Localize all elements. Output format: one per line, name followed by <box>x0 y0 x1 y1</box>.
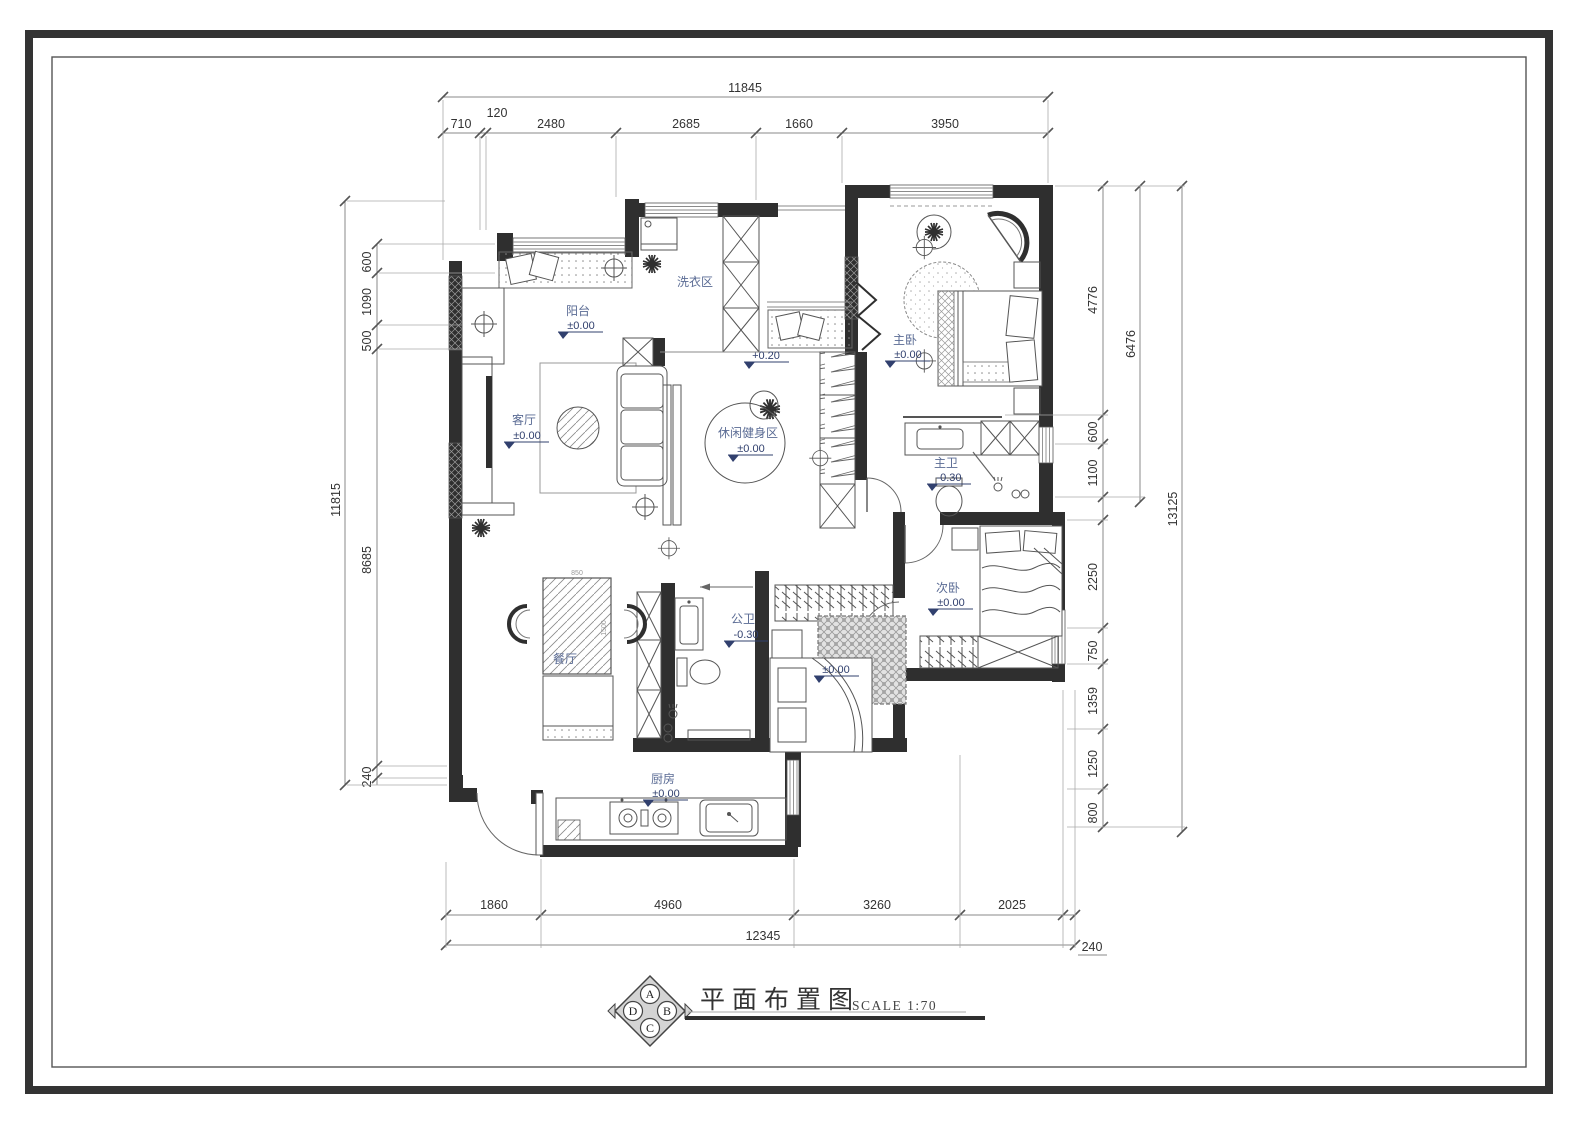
second-bedroom-level: ±0.00 <box>937 597 964 609</box>
balcony-window <box>513 238 625 253</box>
laundry-name: 洗衣区 <box>677 274 713 289</box>
dim-right-600: 600 <box>1086 422 1100 443</box>
compass-letter-a: A <box>646 987 655 1001</box>
dim-right-total: 13125 <box>1166 492 1180 527</box>
dim-left-600: 600 <box>360 252 374 273</box>
second-bedroom-door <box>905 525 943 563</box>
dim-bottom-240: 240 <box>1082 940 1103 954</box>
drawing-scale: SCALE 1:70 <box>852 998 937 1013</box>
master-suite-door <box>867 478 901 512</box>
title-block: A B C D 平面布置图 SCALE 1:70 <box>608 976 985 1046</box>
dim-left-240: 240 <box>360 767 374 788</box>
master-bath-fixtures <box>903 417 1039 516</box>
hallway-window-seat-wall <box>767 302 852 307</box>
dim-right-1250: 1250 <box>1086 750 1100 778</box>
balcony-level: ±0.00 <box>567 320 594 332</box>
living-room-furniture <box>462 338 681 537</box>
floor-plan-sheet: 阳台 ±0.00 洗衣区 主卧 ±0.00 客厅 ±0.00 休闲健身区 ±0.… <box>0 0 1578 1124</box>
compass-letter-d: D <box>629 1004 638 1018</box>
master-bath-level: -0.30 <box>936 472 961 484</box>
room-label-fitness: 休闲健身区 ±0.00 <box>718 425 778 462</box>
room-label-dining: 餐厅 <box>553 651 577 666</box>
master-bedroom-level: ±0.00 <box>894 349 921 361</box>
dim-bottom-1860: 1860 <box>480 898 508 912</box>
dim-bottom-total: 12345 <box>746 929 781 943</box>
dim-top-1660: 1660 <box>785 117 813 131</box>
master-bath-name: 主卫 <box>934 456 958 470</box>
master-bedroom-name: 主卧 <box>893 333 917 347</box>
dim-bottom-4960: 4960 <box>654 898 682 912</box>
kitchen-level: ±0.00 <box>652 788 679 800</box>
dim-left-total: 11815 <box>329 483 343 517</box>
dim-left-1090: 1090 <box>360 288 374 316</box>
dim-right-750: 750 <box>1086 641 1100 662</box>
dim-right-1359: 1359 <box>1086 687 1100 715</box>
fitness-name: 休闲健身区 <box>718 425 778 440</box>
public-bath-sliding-door <box>700 584 753 591</box>
dimensions-right: 4776 600 1100 2250 750 1359 1250 800 647… <box>1005 181 1187 837</box>
dim-top-2685: 2685 <box>672 117 700 131</box>
living-room-name: 客厅 <box>512 412 536 427</box>
dim-top-710: 710 <box>451 117 472 131</box>
dim-left-8685: 8685 <box>360 546 374 574</box>
hallway-level: +0.20 <box>752 350 780 362</box>
dim-top-2480: 2480 <box>537 117 565 131</box>
public-bath-level: -0.30 <box>733 629 758 641</box>
dining-table-width: 850 <box>571 570 583 577</box>
room-label-second-bedroom: 次卧 ±0.00 <box>928 581 973 616</box>
master-bedroom-furniture <box>856 203 1042 414</box>
second-bedroom-name: 次卧 <box>936 581 960 595</box>
dim-bottom-2025: 2025 <box>998 898 1026 912</box>
compass-symbol: A B C D <box>608 976 692 1046</box>
dining-name: 餐厅 <box>553 651 577 666</box>
dimensions-left: 11815 600 1090 500 8685 240 <box>329 196 495 790</box>
room-label-balcony: 阳台 ±0.00 <box>558 303 603 339</box>
public-bath-name: 公卫 <box>731 612 755 626</box>
dim-top-120: 120 <box>487 106 508 120</box>
fitness-furniture <box>660 310 855 528</box>
dim-top-total: 11845 <box>728 81 762 95</box>
dim-left-500: 500 <box>360 331 374 352</box>
balcony-furniture <box>462 251 632 364</box>
bedroom3-furniture <box>658 537 906 752</box>
dim-right-1100: 1100 <box>1086 460 1100 487</box>
bedroom3-level: ±0.00 <box>822 664 849 676</box>
dim-right-6476: 6476 <box>1124 330 1138 358</box>
kitchen-window <box>787 760 799 815</box>
sheet-border <box>29 34 1549 1090</box>
dining-table-depth: 1500 <box>601 620 608 636</box>
drawing-title: 平面布置图 <box>700 986 860 1014</box>
dim-right-4776: 4776 <box>1086 286 1100 314</box>
room-label-hallway-level: +0.20 <box>744 350 789 369</box>
living-room-level: ±0.00 <box>513 430 540 442</box>
shower-door <box>973 452 995 480</box>
dim-top-3950: 3950 <box>931 117 959 131</box>
compass-letter-b: B <box>663 1004 671 1018</box>
balcony-name: 阳台 <box>566 303 590 318</box>
dim-right-800: 800 <box>1086 803 1100 824</box>
kitchen-furniture <box>556 798 786 840</box>
witness-right <box>1005 186 1185 827</box>
room-label-living-room: 客厅 ±0.00 <box>504 412 549 449</box>
compass-letter-c: C <box>646 1021 654 1035</box>
room-label-laundry: 洗衣区 <box>677 274 713 289</box>
kitchen-name: 厨房 <box>651 771 675 786</box>
dim-right-2250: 2250 <box>1086 563 1100 591</box>
dim-bottom-3260: 3260 <box>863 898 891 912</box>
fitness-level: ±0.00 <box>737 443 764 455</box>
